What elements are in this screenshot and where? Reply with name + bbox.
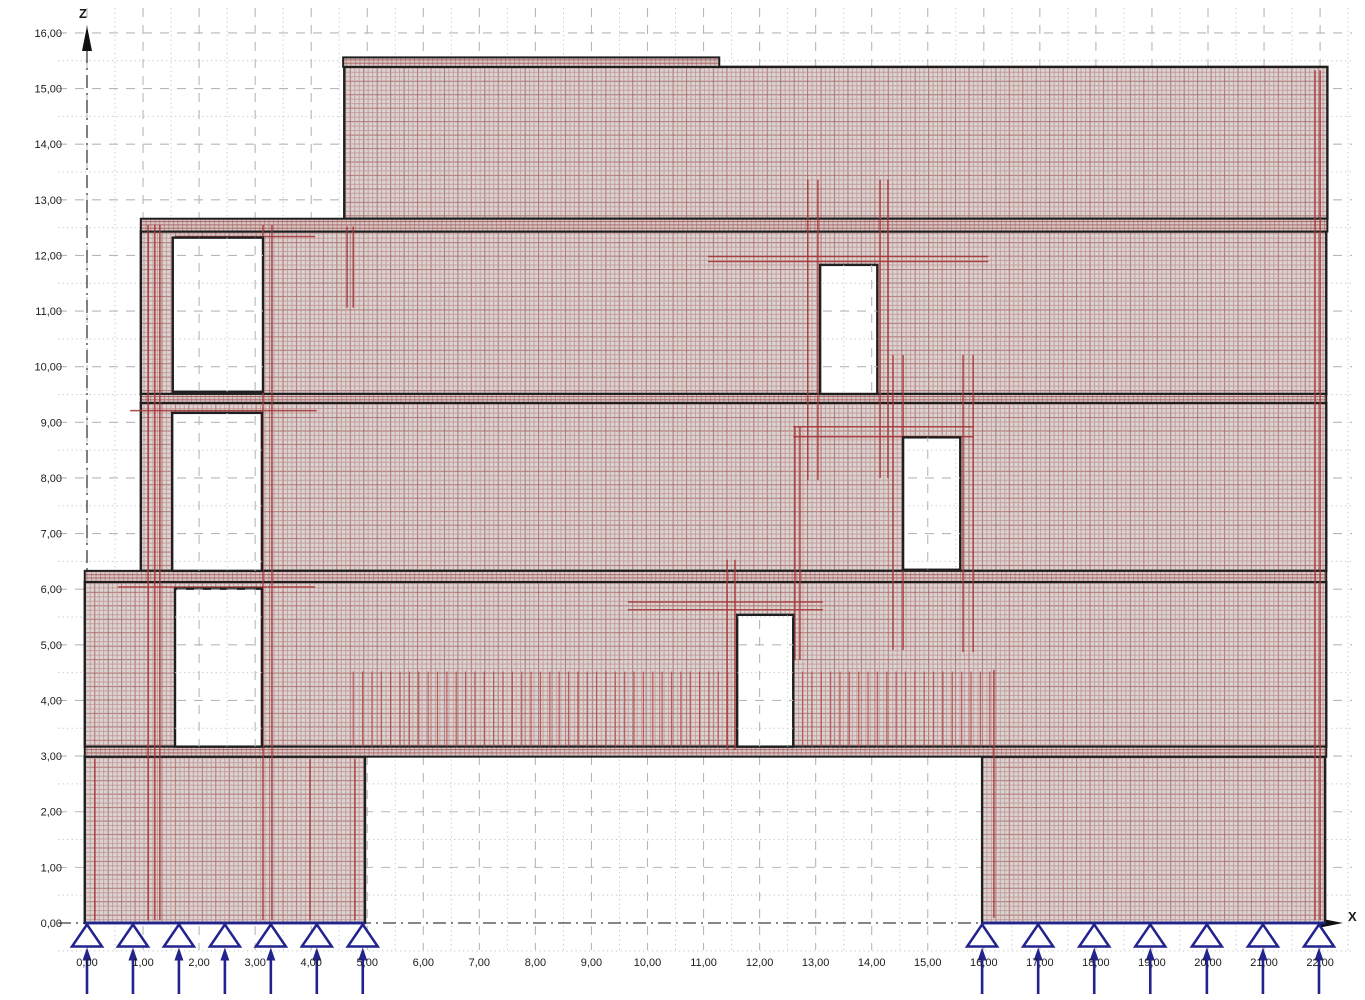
- z-axis-label: Z: [79, 6, 87, 21]
- support-triangle[interactable]: [210, 925, 240, 947]
- z-tick-label: 8,00: [41, 473, 62, 485]
- x-tick-label: 14,00: [858, 957, 886, 969]
- x-tick-label: 16,00: [970, 957, 998, 969]
- z-tick-label: 5,00: [41, 640, 62, 652]
- wall-top-wall[interactable]: [344, 67, 1327, 219]
- z-axis-arrowhead-icon: [82, 26, 92, 51]
- support-triangle[interactable]: [1192, 925, 1222, 947]
- x-tick-label: 1,00: [132, 957, 153, 969]
- opening-mid-left[interactable]: [172, 413, 262, 571]
- x-tick-label: 9,00: [581, 957, 602, 969]
- slab-level1[interactable]: [85, 747, 1327, 757]
- slab-level2[interactable]: [85, 571, 1327, 582]
- model-viewport[interactable]: 16,0015,0014,0013,0012,0011,0010,009,008…: [0, 0, 1365, 1000]
- wall-ground-wall-right[interactable]: [982, 757, 1325, 923]
- support-triangle[interactable]: [1248, 925, 1278, 947]
- slab-level3[interactable]: [141, 394, 1326, 403]
- support-triangle[interactable]: [302, 925, 332, 947]
- x-tick-label: 5,00: [357, 957, 378, 969]
- x-tick-label: 20,00: [1194, 957, 1222, 969]
- structural-model-canvas[interactable]: 16,0015,0014,0013,0012,0011,0010,009,008…: [0, 0, 1365, 1000]
- wall-story1-wall[interactable]: [85, 582, 1327, 747]
- support-triangle[interactable]: [967, 925, 997, 947]
- structure: [85, 57, 1328, 923]
- x-tick-label: 10,00: [634, 957, 662, 969]
- x-tick-label: 6,00: [413, 957, 434, 969]
- wall-story2-wall[interactable]: [141, 403, 1326, 571]
- reaction-arrow-head-icon: [220, 948, 229, 961]
- z-tick-label: 9,00: [41, 417, 62, 429]
- support-triangle[interactable]: [256, 925, 286, 947]
- opening-upper-mid[interactable]: [820, 265, 877, 394]
- x-tick-label: 0,00: [76, 957, 97, 969]
- opening-right-mid[interactable]: [903, 437, 960, 569]
- x-tick-label: 19,00: [1138, 957, 1166, 969]
- support-triangle[interactable]: [1135, 925, 1165, 947]
- z-tick-label: 4,00: [41, 695, 62, 707]
- support-triangle[interactable]: [1079, 925, 1109, 947]
- support-triangle[interactable]: [348, 925, 378, 947]
- x-axis-label: X: [1348, 909, 1357, 924]
- x-tick-label: 22,00: [1306, 957, 1334, 969]
- roof-parapet[interactable]: [343, 57, 719, 66]
- z-tick-label: 13,00: [34, 195, 62, 207]
- z-tick-label: 11,00: [35, 306, 62, 318]
- x-tick-label: 13,00: [802, 957, 830, 969]
- z-tick-label: 10,00: [34, 362, 62, 374]
- reaction-arrow-head-icon: [174, 948, 183, 961]
- z-tick-label: 12,00: [34, 250, 62, 262]
- support-triangle[interactable]: [164, 925, 194, 947]
- support-triangle[interactable]: [1304, 925, 1334, 947]
- x-tick-label: 2,00: [188, 957, 209, 969]
- x-tick-label: 17,00: [1026, 957, 1054, 969]
- z-tick-label: 2,00: [41, 807, 62, 819]
- z-tick-label: 1,00: [41, 862, 62, 874]
- slab-level4[interactable]: [141, 219, 1328, 232]
- support-triangle[interactable]: [72, 925, 102, 947]
- x-tick-label: 18,00: [1082, 957, 1110, 969]
- z-tick-label: 7,00: [41, 529, 62, 541]
- x-tick-label: 8,00: [525, 957, 546, 969]
- x-tick-label: 11,00: [690, 957, 717, 969]
- wall-ground-wall-left[interactable]: [85, 757, 365, 923]
- z-tick-label: 16,00: [34, 28, 62, 40]
- x-tick-label: 7,00: [469, 957, 490, 969]
- reaction-arrow-head-icon: [266, 948, 275, 961]
- support-triangle[interactable]: [1023, 925, 1053, 947]
- opening-lower-left[interactable]: [175, 589, 262, 747]
- x-tick-label: 15,00: [914, 957, 942, 969]
- z-tick-label: 6,00: [41, 584, 62, 596]
- z-tick-label: 0,00: [41, 918, 62, 930]
- opening-lower-mid[interactable]: [737, 615, 793, 747]
- x-tick-label: 21,00: [1250, 957, 1278, 969]
- z-tick-label: 3,00: [41, 751, 62, 763]
- opening-upper-left[interactable]: [173, 238, 263, 392]
- x-tick-label: 4,00: [300, 957, 321, 969]
- z-tick-label: 14,00: [34, 139, 62, 151]
- x-tick-label: 12,00: [746, 957, 774, 969]
- x-tick-label: 3,00: [244, 957, 265, 969]
- z-tick-label: 15,00: [34, 84, 62, 96]
